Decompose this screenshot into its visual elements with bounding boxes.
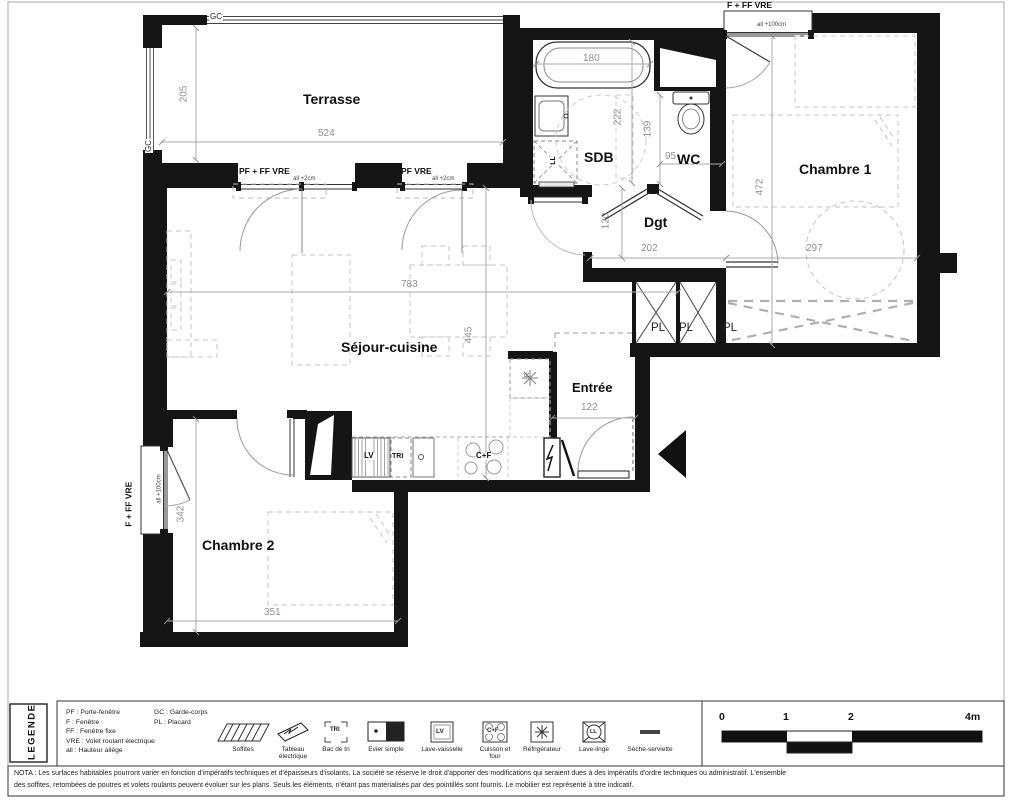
room-label-entree: Entrée bbox=[572, 381, 612, 394]
dishwasher-label: LV bbox=[363, 452, 375, 460]
window-sublabel-all100-top: all +100cm bbox=[757, 22, 786, 28]
closet-label-2: PL bbox=[679, 323, 693, 335]
dim-wc-height: 139 bbox=[643, 121, 653, 138]
legend-lv-glyph: LV bbox=[436, 728, 444, 735]
closet-label-3: PL bbox=[723, 323, 737, 335]
window-label-f-ff-vre-top: F + FF VRE bbox=[727, 1, 772, 10]
fridge-label: R bbox=[525, 373, 531, 377]
dim-dgt-height: 120 bbox=[601, 213, 611, 230]
legend-abbr-all: all : Hauteur allège bbox=[66, 746, 155, 756]
entry-arrow-icon bbox=[658, 430, 686, 478]
scale-tick-1: 1 bbox=[783, 712, 789, 723]
room-label-dgt: Dgt bbox=[644, 215, 667, 229]
floorplan-page: Terrasse SDB WC Chambre 1 Dgt Séjour-cui… bbox=[0, 0, 1011, 800]
dim-sejour-width: 783 bbox=[401, 280, 418, 290]
nota-line-2: des soffites, retombées de poutres et vo… bbox=[14, 782, 633, 789]
legend-ll-glyph: LL bbox=[590, 729, 597, 735]
scale-tick-0: 0 bbox=[719, 712, 725, 723]
dim-terrasse-width: 524 bbox=[318, 129, 335, 139]
legend-icon-label-tableau: Tableau électrique bbox=[273, 746, 313, 761]
legend-icon-label-cuisson: Cuisson et four bbox=[478, 746, 512, 761]
window-sublabel-all100-left: all +100cm bbox=[157, 474, 163, 503]
floorplan-drawing bbox=[0, 0, 1011, 800]
window-sublabel-all2-2: all +2cm bbox=[432, 176, 455, 182]
room-label-chambre1: Chambre 1 bbox=[799, 162, 871, 176]
legend-abbr-ff: FF : Fenêtre fixe bbox=[66, 727, 155, 737]
dim-entree-width: 122 bbox=[581, 403, 598, 413]
legend-icon-label-secheserviette: Sèche-serviette bbox=[627, 746, 672, 753]
refrigerator-icon bbox=[531, 722, 553, 742]
legend-cf-glyph: C+F bbox=[487, 728, 499, 734]
scale-tick-2: 2 bbox=[848, 712, 854, 723]
closet-label-1: PL bbox=[651, 323, 665, 335]
legend-icon-label-lavevaisselle: Lave-vaisselle bbox=[421, 746, 462, 753]
scale-bar bbox=[722, 731, 982, 753]
legend-icon-label-bacdetri: Bac de tri bbox=[322, 746, 349, 753]
room-label-wc: WC bbox=[677, 152, 700, 166]
window-label-pf-ff-vre: PF + FF VRE bbox=[239, 167, 290, 176]
legend-abbr-gc: GC : Garde-corps bbox=[154, 708, 208, 718]
dim-chambre2-width: 351 bbox=[264, 608, 281, 618]
dim-sejour-height: 445 bbox=[464, 327, 474, 344]
dim-chambre1-width: 297 bbox=[806, 244, 823, 254]
soffites-icon bbox=[218, 724, 269, 741]
sink-icon bbox=[368, 722, 404, 741]
legend-tri-glyph: TRI bbox=[330, 727, 340, 733]
nota-line-1: NOTA : Les surfaces habitables pourront … bbox=[14, 770, 786, 777]
legend-icon-label-soffites: Soffites bbox=[232, 746, 254, 753]
legend-abbr-pl: PL : Placard bbox=[154, 718, 208, 728]
dim-dgt-width: 202 bbox=[641, 244, 658, 254]
window-label-f-ff-vre-left: F + FF VRE bbox=[124, 482, 133, 527]
electrical-panel-icon bbox=[278, 723, 308, 741]
dim-chambre1-height: 472 bbox=[755, 179, 765, 196]
legend-icon-label-refrigerateur: Réfrigérateur bbox=[523, 746, 561, 753]
window-label-pf-vre: PF VRE bbox=[401, 167, 432, 176]
legend-abbr-vre: VRE : Volet roulant électrique bbox=[66, 737, 155, 747]
dim-wc-width: 95 bbox=[665, 152, 676, 162]
room-label-sdb: SDB bbox=[584, 150, 614, 164]
dim-terrasse-height: 205 bbox=[179, 86, 189, 103]
guardrail-label-left: GC bbox=[145, 139, 153, 153]
closet-chambre1 bbox=[728, 301, 913, 341]
guardrail-label-top: GC bbox=[209, 13, 223, 21]
room-label-sejour: Séjour-cuisine bbox=[341, 340, 437, 354]
window-sublabel-all2-1: all +2cm bbox=[293, 176, 316, 182]
scale-tick-4m: 4m bbox=[965, 712, 980, 723]
legend-title: LEGENDE bbox=[27, 704, 37, 760]
cooktop-label: C+F bbox=[475, 452, 492, 460]
recycling-label: TRI bbox=[392, 453, 403, 460]
washer-label: LL bbox=[550, 156, 557, 165]
legend-icon-label-lavelinge: Lave-linge bbox=[579, 746, 609, 753]
dim-bathtub: 180 bbox=[583, 54, 600, 64]
legend-abbr-col1: PF : Porte-fenêtre F : Fenêtre FF : Fenê… bbox=[66, 708, 155, 756]
legend-icon-label-evier: Evier simple bbox=[368, 746, 403, 753]
legend-abbr-f: F : Fenêtre bbox=[66, 718, 155, 728]
towel-rail-icon bbox=[640, 730, 660, 734]
legend-abbr-pf: PF : Porte-fenêtre bbox=[66, 708, 155, 718]
room-label-chambre2: Chambre 2 bbox=[202, 538, 274, 552]
dim-sdb-height: 222 bbox=[613, 109, 623, 126]
room-label-terrasse: Terrasse bbox=[303, 92, 360, 106]
legend-abbr-col2: GC : Garde-corps PL : Placard bbox=[154, 708, 208, 727]
dim-chambre2-height: 342 bbox=[176, 506, 186, 523]
